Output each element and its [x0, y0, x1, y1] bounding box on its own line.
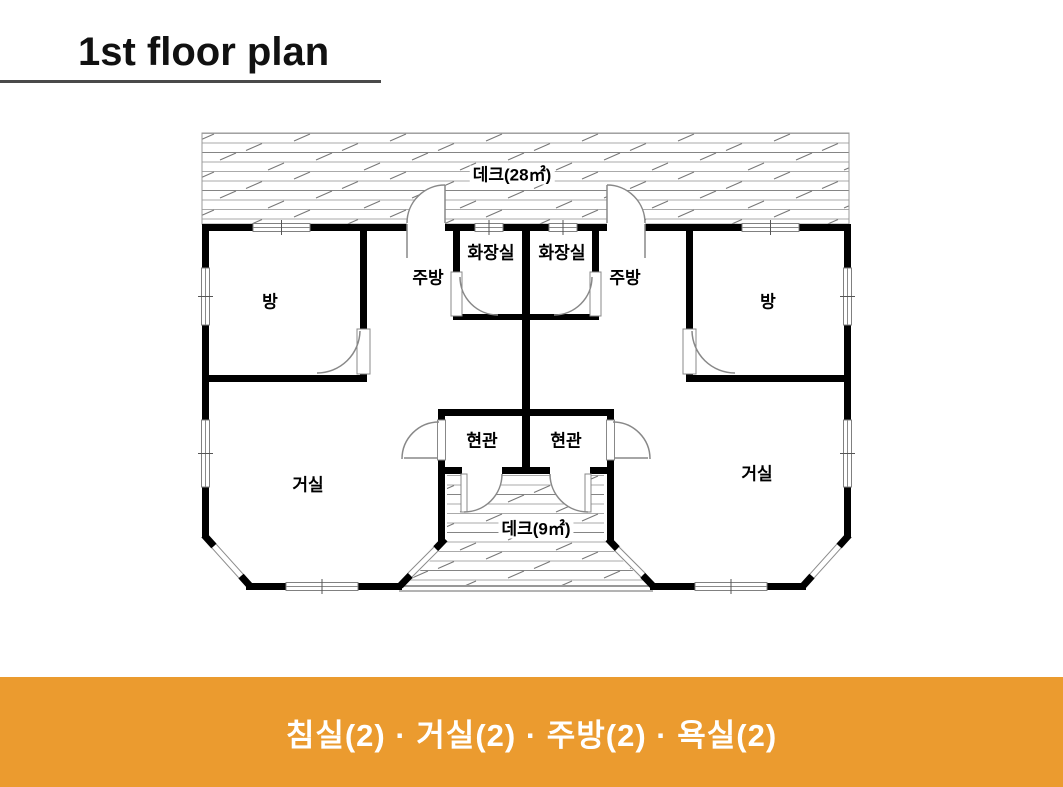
- label-bedroom-left: 방: [262, 294, 278, 311]
- floor-plan-drawing: [0, 0, 1063, 787]
- label-deck-bottom: 데크(9㎡): [498, 520, 573, 539]
- page: 1st floor plan: [0, 0, 1063, 787]
- summary-banner-text: 침실(2) · 거실(2) · 주방(2) · 욕실(2): [286, 710, 777, 755]
- label-kitchen-left: 주방: [412, 270, 443, 287]
- label-entrance-left: 현관: [466, 433, 497, 450]
- floor-plan: 데크(28㎡) 화장실 화장실 주방 주방 방 방 현관 현관 거실 거실 데크…: [0, 0, 1063, 787]
- label-deck-top: 데크(28㎡): [470, 166, 555, 185]
- label-kitchen-right: 주방: [609, 270, 640, 287]
- label-living-right: 거실: [741, 466, 772, 483]
- summary-banner: 침실(2) · 거실(2) · 주방(2) · 욕실(2): [0, 677, 1063, 787]
- label-bedroom-right: 방: [760, 294, 776, 311]
- label-bathroom-left: 화장실: [468, 245, 515, 262]
- label-living-left: 거실: [292, 477, 323, 494]
- label-entrance-right: 현관: [550, 433, 581, 450]
- label-bathroom-right: 화장실: [539, 245, 586, 262]
